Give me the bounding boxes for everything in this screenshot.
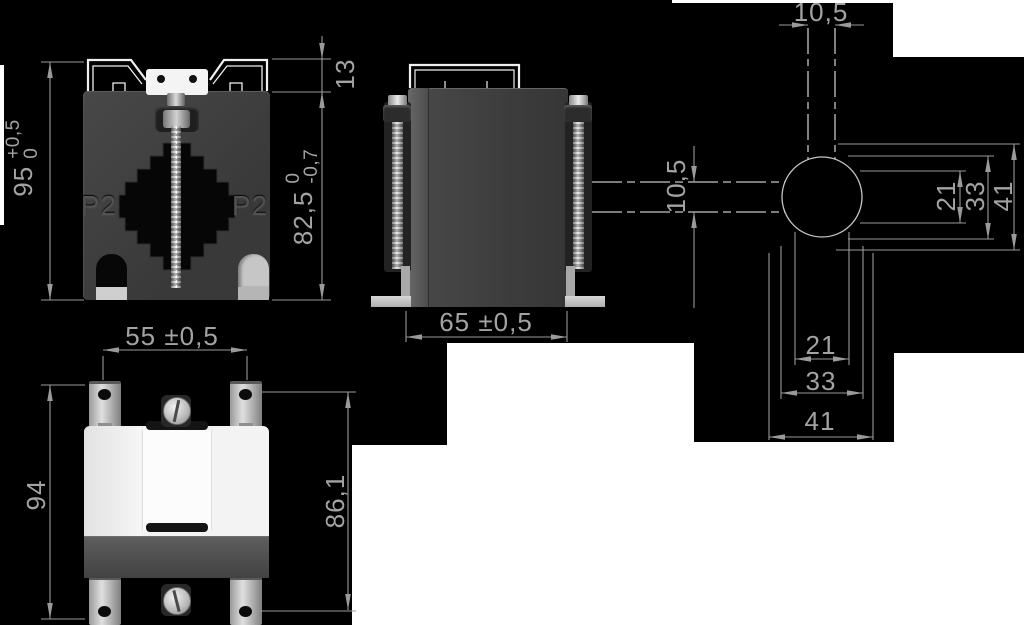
side-foot-left (371, 296, 411, 307)
p2-label-left: P2 (77, 191, 121, 221)
white-region-bottom-right (894, 353, 1024, 625)
front-cutout-left (96, 254, 127, 288)
dim-vertical-21: 21 (933, 175, 959, 217)
dim-overall-height-95: 95 +0,50 (0, 103, 46, 213)
rod-centerline (176, 126, 177, 288)
tolerance-stack: +0,50 (5, 119, 41, 159)
post-hole (239, 389, 252, 400)
p2-right-text: P2 (232, 190, 268, 222)
front-cutout-right (238, 254, 269, 288)
dim-overall-depth-94: 94 (22, 470, 50, 520)
screw-slot (172, 590, 180, 612)
dim-horizontal-21: 21 (798, 332, 844, 358)
side-view-left-band (408, 88, 429, 307)
mount-post-bottom-right (230, 577, 262, 625)
side-foot-right (565, 296, 605, 307)
dim-value: 94 (21, 480, 52, 511)
white-region-bottom-mid-right (694, 442, 894, 625)
side-view-body (408, 88, 568, 307)
post-hole (98, 389, 111, 400)
tol-lower: -0,7 (303, 149, 321, 184)
dim-value: 33 (960, 181, 991, 212)
dim-body-height-82-5: 82,5 0-0,7 (280, 141, 326, 253)
dim-value: 41 (988, 181, 1019, 212)
dim-value: 86,1 (320, 474, 351, 529)
dim-side-width-65: 65 ±0,5 (411, 308, 561, 336)
dim-value: 82,5 (288, 191, 319, 246)
dim-value: 33 (806, 366, 837, 397)
front-clip-outline (88, 60, 267, 91)
dim-vertical-33: 33 (962, 175, 988, 217)
terminal-bar-bottom (146, 523, 208, 532)
dim-value: 65 ±0,5 (439, 307, 533, 338)
dim-horizontal-33: 33 (798, 368, 844, 394)
dim-hole-pitch-86-1: 86,1 (321, 464, 349, 538)
side-rod-nut-right (564, 105, 592, 122)
front-cutout-right-base (238, 287, 269, 300)
dim-clip-height-13: 13 (332, 54, 358, 94)
white-region-bottom-center (447, 343, 694, 625)
post-hole (239, 606, 252, 617)
white-region-top-right (893, 0, 1024, 57)
side-clip-outline (410, 65, 519, 88)
clip-plate-hole-right (189, 75, 197, 83)
p2-label-right: P2 (228, 191, 272, 221)
side-threaded-rod-left (392, 117, 403, 269)
tolerance-stack: 0-0,7 (285, 149, 321, 184)
dim-value: 21 (931, 181, 962, 212)
dim-value: 10,5 (661, 159, 692, 214)
dim-slot-width-top-10-5: 10,5 (781, 0, 861, 24)
dim-value: 13 (330, 59, 361, 90)
side-rod-nut-left (383, 105, 411, 122)
clip-plate-hole-left (157, 75, 165, 83)
dim-value: 21 (806, 330, 837, 361)
screw-slot (173, 400, 181, 422)
post-hole (98, 606, 111, 617)
mount-post-top-right (230, 381, 262, 427)
top-view-core-band (84, 536, 269, 578)
top-view-center-cover (142, 430, 212, 530)
dim-value: 10,5 (794, 0, 849, 28)
side-foot-right-vertical (566, 266, 575, 297)
top-view-left-panel (84, 426, 141, 536)
top-screw (163, 397, 191, 425)
p2-left-text: P2 (81, 190, 117, 222)
dim-horizontal-41: 41 (797, 408, 843, 434)
dim-value: 95 (8, 166, 39, 197)
technical-drawing-page: P2 P2 (0, 0, 1024, 625)
bottom-screw (163, 587, 191, 615)
dim-value: 41 (805, 406, 836, 437)
side-foot-left-vertical (401, 266, 410, 297)
front-screw-cap (167, 93, 185, 106)
side-threaded-rod-right (573, 117, 584, 269)
mount-post-top-left (89, 381, 121, 427)
tol-lower: 0 (23, 119, 41, 159)
front-cutout-left-base (96, 287, 127, 300)
center-hole-circle (782, 157, 862, 237)
dim-vertical-41: 41 (990, 175, 1016, 217)
mount-post-bottom-left (89, 577, 121, 625)
white-region-bottom-left-gap (352, 445, 447, 625)
dim-foot-spacing-55: 55 ±0,5 (97, 322, 247, 350)
dim-slot-width-side-10-5: 10,5 (664, 146, 688, 226)
dim-value: 55 ±0,5 (125, 321, 219, 352)
front-threaded-rod (171, 126, 181, 288)
hole-pattern-geometry (592, 28, 862, 237)
